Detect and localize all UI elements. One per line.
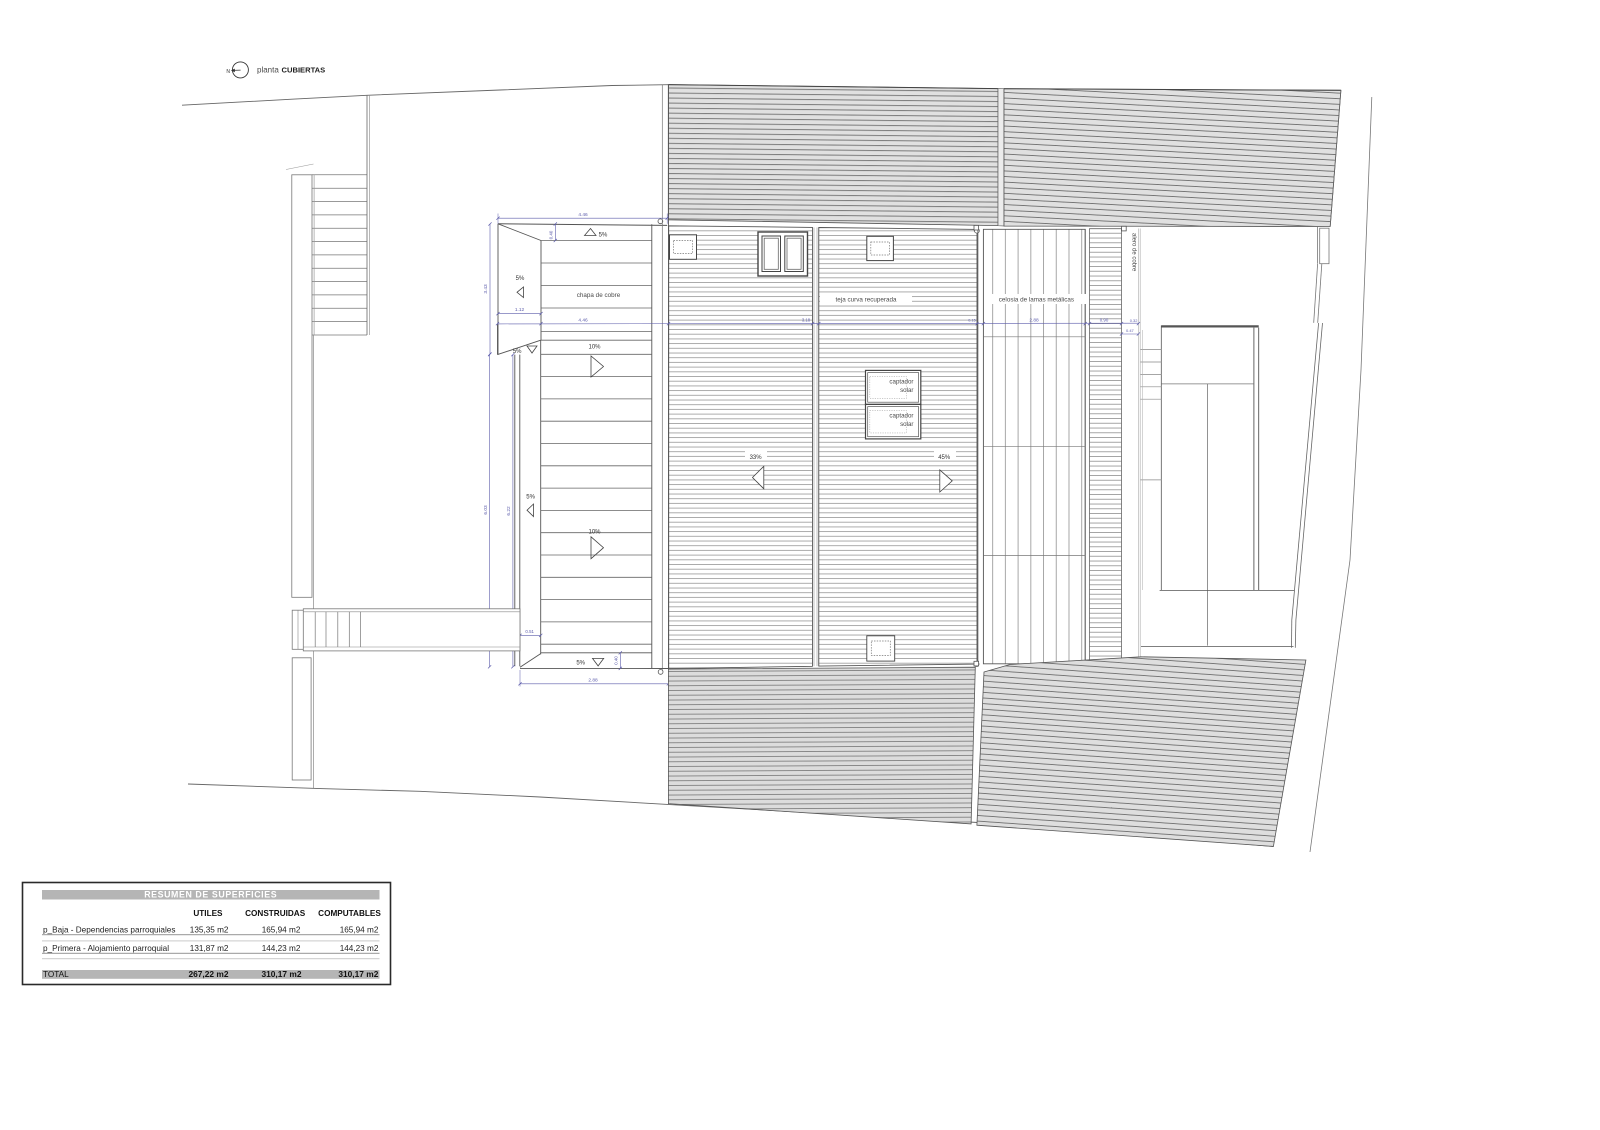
- svg-text:135,35 m2: 135,35 m2: [190, 925, 229, 934]
- svg-text:5%: 5%: [576, 661, 585, 667]
- svg-text:captador: captador: [889, 413, 913, 420]
- svg-text:3.18: 3.18: [802, 317, 811, 322]
- svg-text:267,22 m2: 267,22 m2: [188, 969, 228, 979]
- svg-text:alero de cobre: alero de cobre: [1131, 233, 1137, 272]
- svg-text:5%: 5%: [516, 276, 525, 282]
- svg-text:RESUMEN DE SUPERFICIES: RESUMEN DE SUPERFICIES: [144, 890, 277, 900]
- svg-text:2.88: 2.88: [588, 678, 598, 684]
- svg-text:p_Primera - Alojamiento parroq: p_Primera - Alojamiento parroquial: [43, 944, 169, 953]
- svg-text:310,17 m2: 310,17 m2: [261, 969, 301, 979]
- svg-text:captador: captador: [889, 379, 913, 386]
- svg-text:0.32: 0.32: [1130, 318, 1139, 323]
- svg-text:310,17 m2: 310,17 m2: [338, 969, 378, 979]
- svg-text:chapa de cobre: chapa de cobre: [577, 292, 621, 299]
- svg-text:0.40: 0.40: [614, 656, 619, 665]
- svg-text:0.90: 0.90: [1100, 317, 1109, 322]
- svg-text:CUBIERTAS: CUBIERTAS: [282, 66, 326, 75]
- svg-text:0.47: 0.47: [1126, 328, 1135, 333]
- svg-text:10%: 10%: [588, 530, 601, 536]
- svg-text:COMPUTABLES: COMPUTABLES: [318, 909, 381, 918]
- svg-text:5%: 5%: [599, 232, 608, 238]
- svg-text:5%: 5%: [513, 349, 522, 355]
- svg-text:p_Baja - Dependencias parroqui: p_Baja - Dependencias parroquiales: [43, 925, 175, 934]
- svg-text:165,94 m2: 165,94 m2: [262, 925, 301, 934]
- svg-text:CONSTRUIDAS: CONSTRUIDAS: [245, 909, 306, 918]
- svg-text:planta: planta: [257, 66, 279, 75]
- svg-text:2.88: 2.88: [1029, 317, 1039, 323]
- svg-text:4.46: 4.46: [578, 212, 588, 218]
- svg-text:N: N: [226, 69, 230, 75]
- svg-text:celosia de lamas metálicas: celosia de lamas metálicas: [999, 297, 1074, 304]
- svg-text:4.46: 4.46: [578, 318, 588, 324]
- svg-text:165,94 m2: 165,94 m2: [340, 925, 379, 934]
- svg-text:144,23 m2: 144,23 m2: [340, 944, 379, 953]
- svg-text:3.43: 3.43: [483, 284, 489, 294]
- svg-text:0.40: 0.40: [549, 230, 554, 239]
- svg-text:10%: 10%: [588, 345, 601, 351]
- svg-text:144,23 m2: 144,23 m2: [262, 944, 301, 953]
- svg-text:131,87 m2: 131,87 m2: [190, 944, 229, 953]
- svg-text:6.22: 6.22: [506, 506, 512, 516]
- svg-text:33%: 33%: [750, 455, 763, 461]
- svg-text:0.51: 0.51: [525, 629, 534, 634]
- svg-text:teja curva recuperada: teja curva recuperada: [836, 297, 897, 304]
- svg-text:0.15: 0.15: [968, 319, 975, 323]
- svg-text:solar: solar: [900, 387, 913, 394]
- svg-text:UTILES: UTILES: [193, 909, 223, 918]
- svg-text:5%: 5%: [526, 495, 535, 501]
- svg-text:solar: solar: [900, 421, 913, 428]
- svg-text:1.12: 1.12: [515, 307, 525, 313]
- svg-text:6.03: 6.03: [483, 505, 489, 515]
- svg-text:45%: 45%: [938, 455, 951, 461]
- svg-text:TOTAL: TOTAL: [43, 970, 69, 979]
